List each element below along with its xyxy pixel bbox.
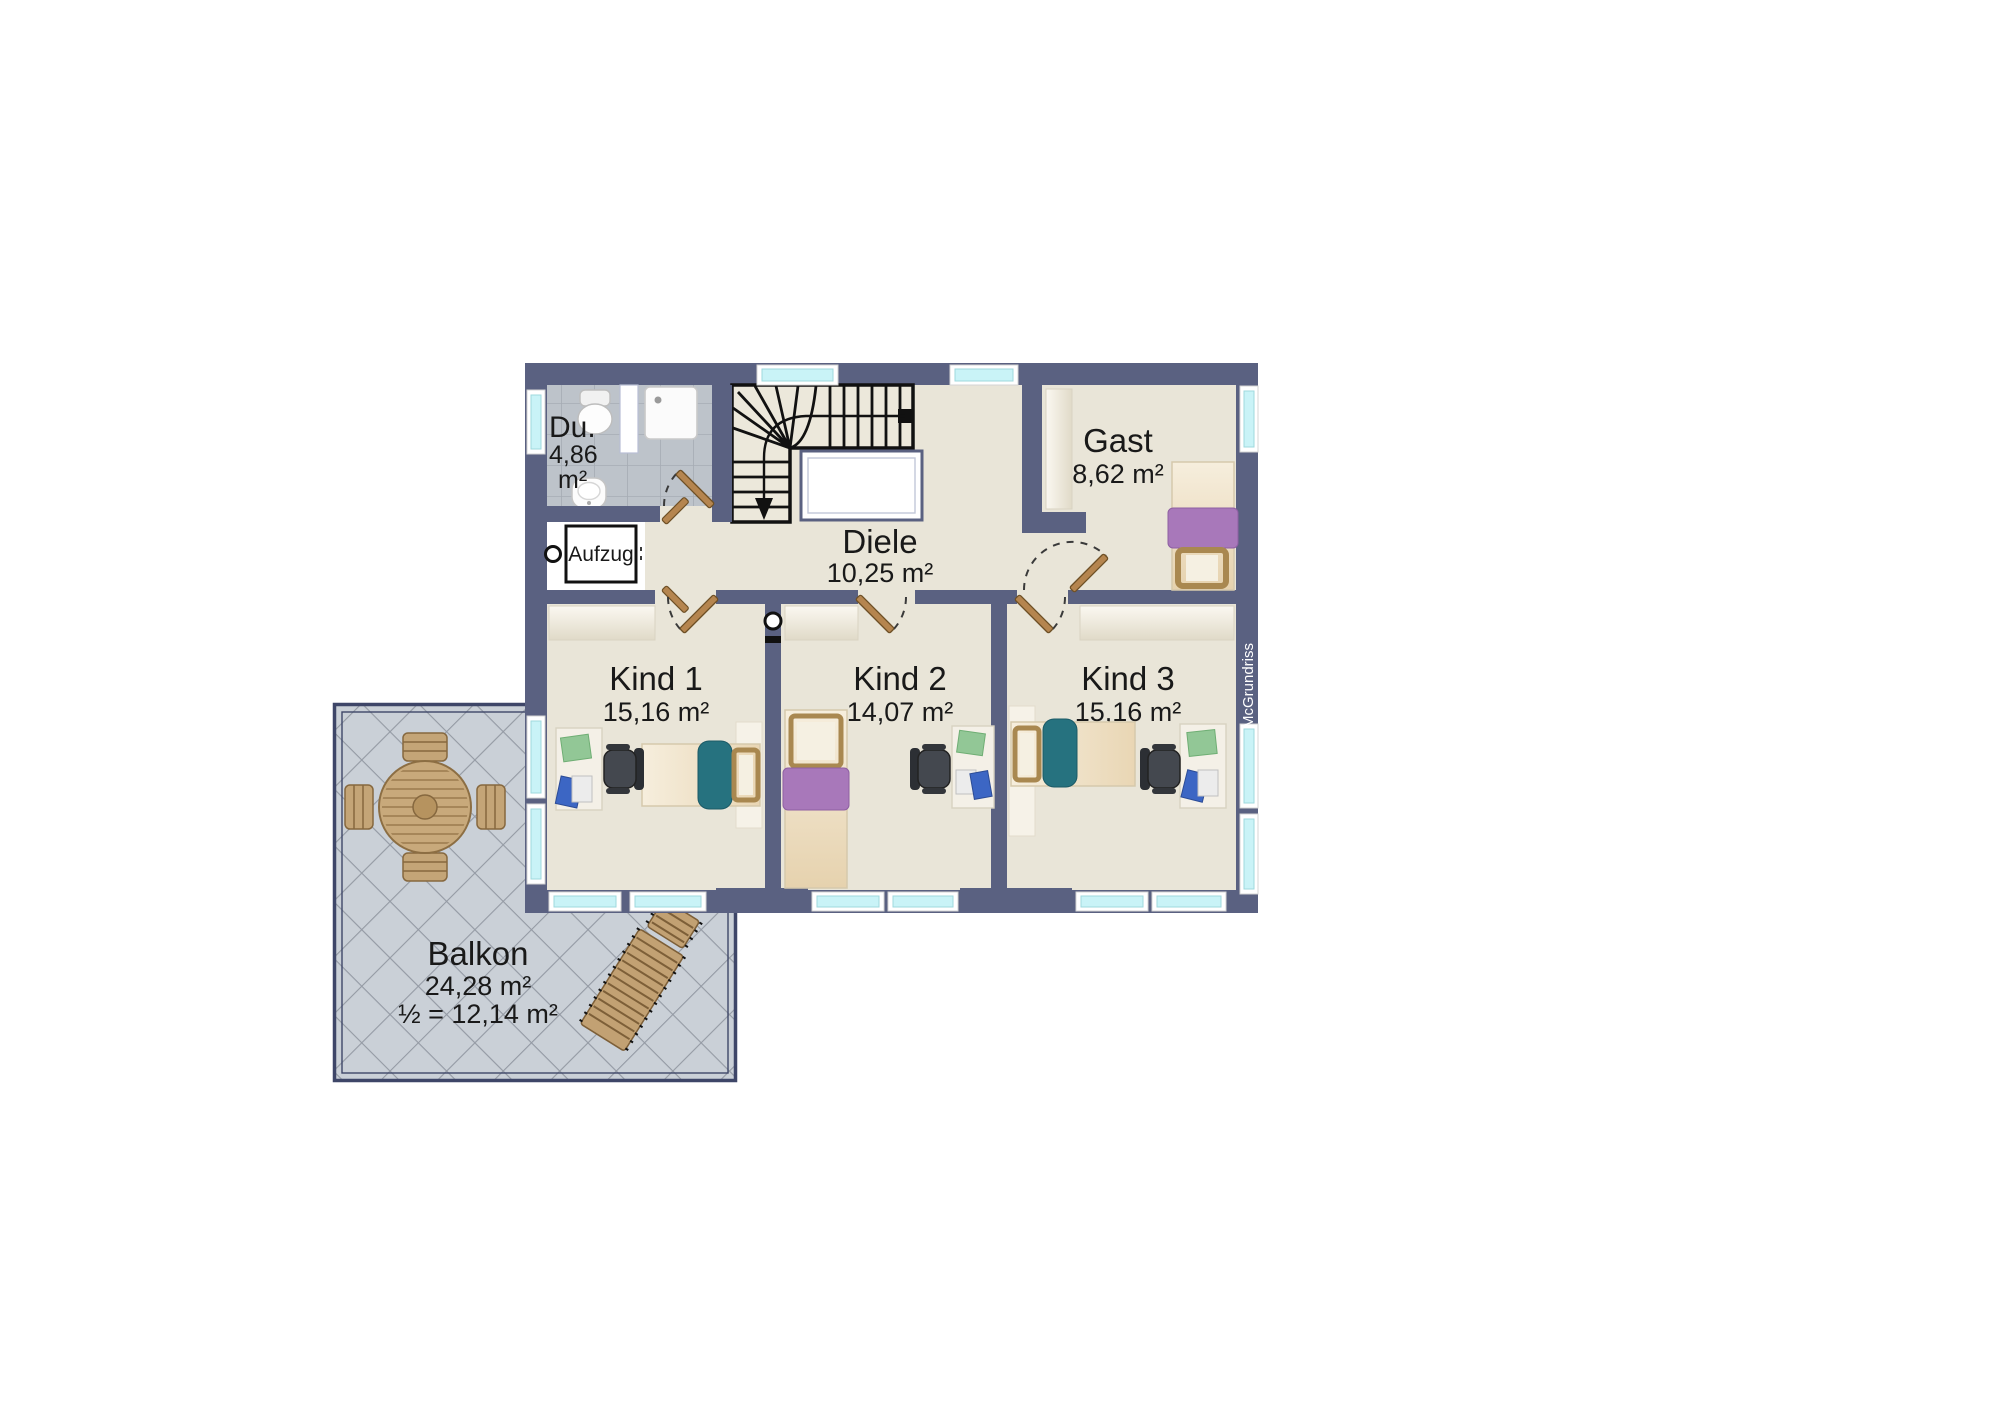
room-diele: Diele 10,25 m²	[827, 523, 934, 588]
room-name: Gast	[1083, 422, 1153, 459]
bed-icon	[1168, 462, 1238, 590]
office-chair-icon	[910, 744, 950, 794]
window-icon	[527, 716, 545, 798]
elevator: Aufzug	[546, 522, 646, 590]
window-icon	[1240, 386, 1258, 452]
room-name: Kind 1	[609, 660, 703, 697]
desk-icon	[952, 726, 994, 808]
window-icon	[549, 892, 621, 911]
wall-bath-south	[547, 506, 660, 522]
wardrobe-kind1	[549, 606, 655, 640]
elevator-label: Aufzug	[568, 543, 633, 566]
window-icon	[812, 892, 884, 911]
watermark-label: McGrundriss	[1240, 643, 1257, 728]
wall-corridor-d	[1068, 590, 1237, 604]
wardrobe-kind2	[785, 606, 858, 640]
room-name: Du.	[549, 411, 596, 444]
room-area-unit: m²	[558, 466, 587, 494]
wardrobe-kind3	[1080, 606, 1234, 640]
bed-icon	[783, 710, 849, 888]
desk-icon	[1180, 724, 1226, 808]
building: Du. 4,86 m² Aufzug	[525, 363, 1258, 913]
room-area: 10,25 m²	[827, 558, 934, 588]
room-area: 24,28 m²	[425, 971, 532, 1001]
wall-gast-stub	[1022, 512, 1086, 533]
window-icon	[527, 390, 545, 454]
room-name: Kind 2	[853, 660, 947, 697]
window-icon	[888, 892, 958, 911]
room-name: Balkon	[428, 935, 529, 972]
floor-plan-canvas: Balkon 24,28 m² ½ = 12,14 m²	[0, 0, 2000, 1413]
room-area-half: ½ = 12,14 m²	[398, 999, 558, 1029]
office-chair-icon	[604, 744, 644, 794]
floor-plan-page: Balkon 24,28 m² ½ = 12,14 m²	[0, 0, 2000, 1413]
office-chair-icon	[1140, 744, 1180, 794]
bed-icon	[1011, 719, 1135, 787]
window-icon	[950, 365, 1018, 385]
window-icon	[1152, 892, 1226, 911]
staircase	[732, 385, 922, 522]
room-area-value: 4,86	[549, 441, 598, 469]
wall-pier-2	[960, 888, 1072, 913]
wall-pier-1	[716, 888, 808, 913]
bed-icon	[642, 741, 760, 809]
window-icon	[757, 365, 838, 385]
window-icon	[1240, 724, 1258, 808]
room-name: Diele	[842, 523, 917, 560]
wall-gast-west	[1022, 385, 1042, 533]
window-icon	[1076, 892, 1148, 911]
room-name: Kind 3	[1081, 660, 1175, 697]
desk-icon	[555, 728, 602, 810]
room-area: 8,62 m²	[1072, 459, 1164, 489]
room-area: 15,16 m²	[603, 697, 710, 727]
window-icon	[527, 804, 545, 884]
wall-corridor-a	[547, 590, 655, 604]
shower-icon	[645, 387, 697, 439]
stairwell-void	[801, 451, 922, 520]
wall-bath-stairs	[712, 385, 732, 522]
window-icon	[630, 892, 706, 911]
room-area: 14,07 m²	[847, 697, 954, 727]
wall-outlet-icon	[765, 613, 781, 643]
bath-partition	[620, 385, 638, 453]
wardrobe-gast	[1046, 389, 1072, 509]
window-icon	[1240, 814, 1258, 894]
wall-corridor-b	[716, 590, 858, 604]
wall-kind1-kind2	[765, 590, 781, 890]
elevator-call-icon	[546, 547, 561, 562]
